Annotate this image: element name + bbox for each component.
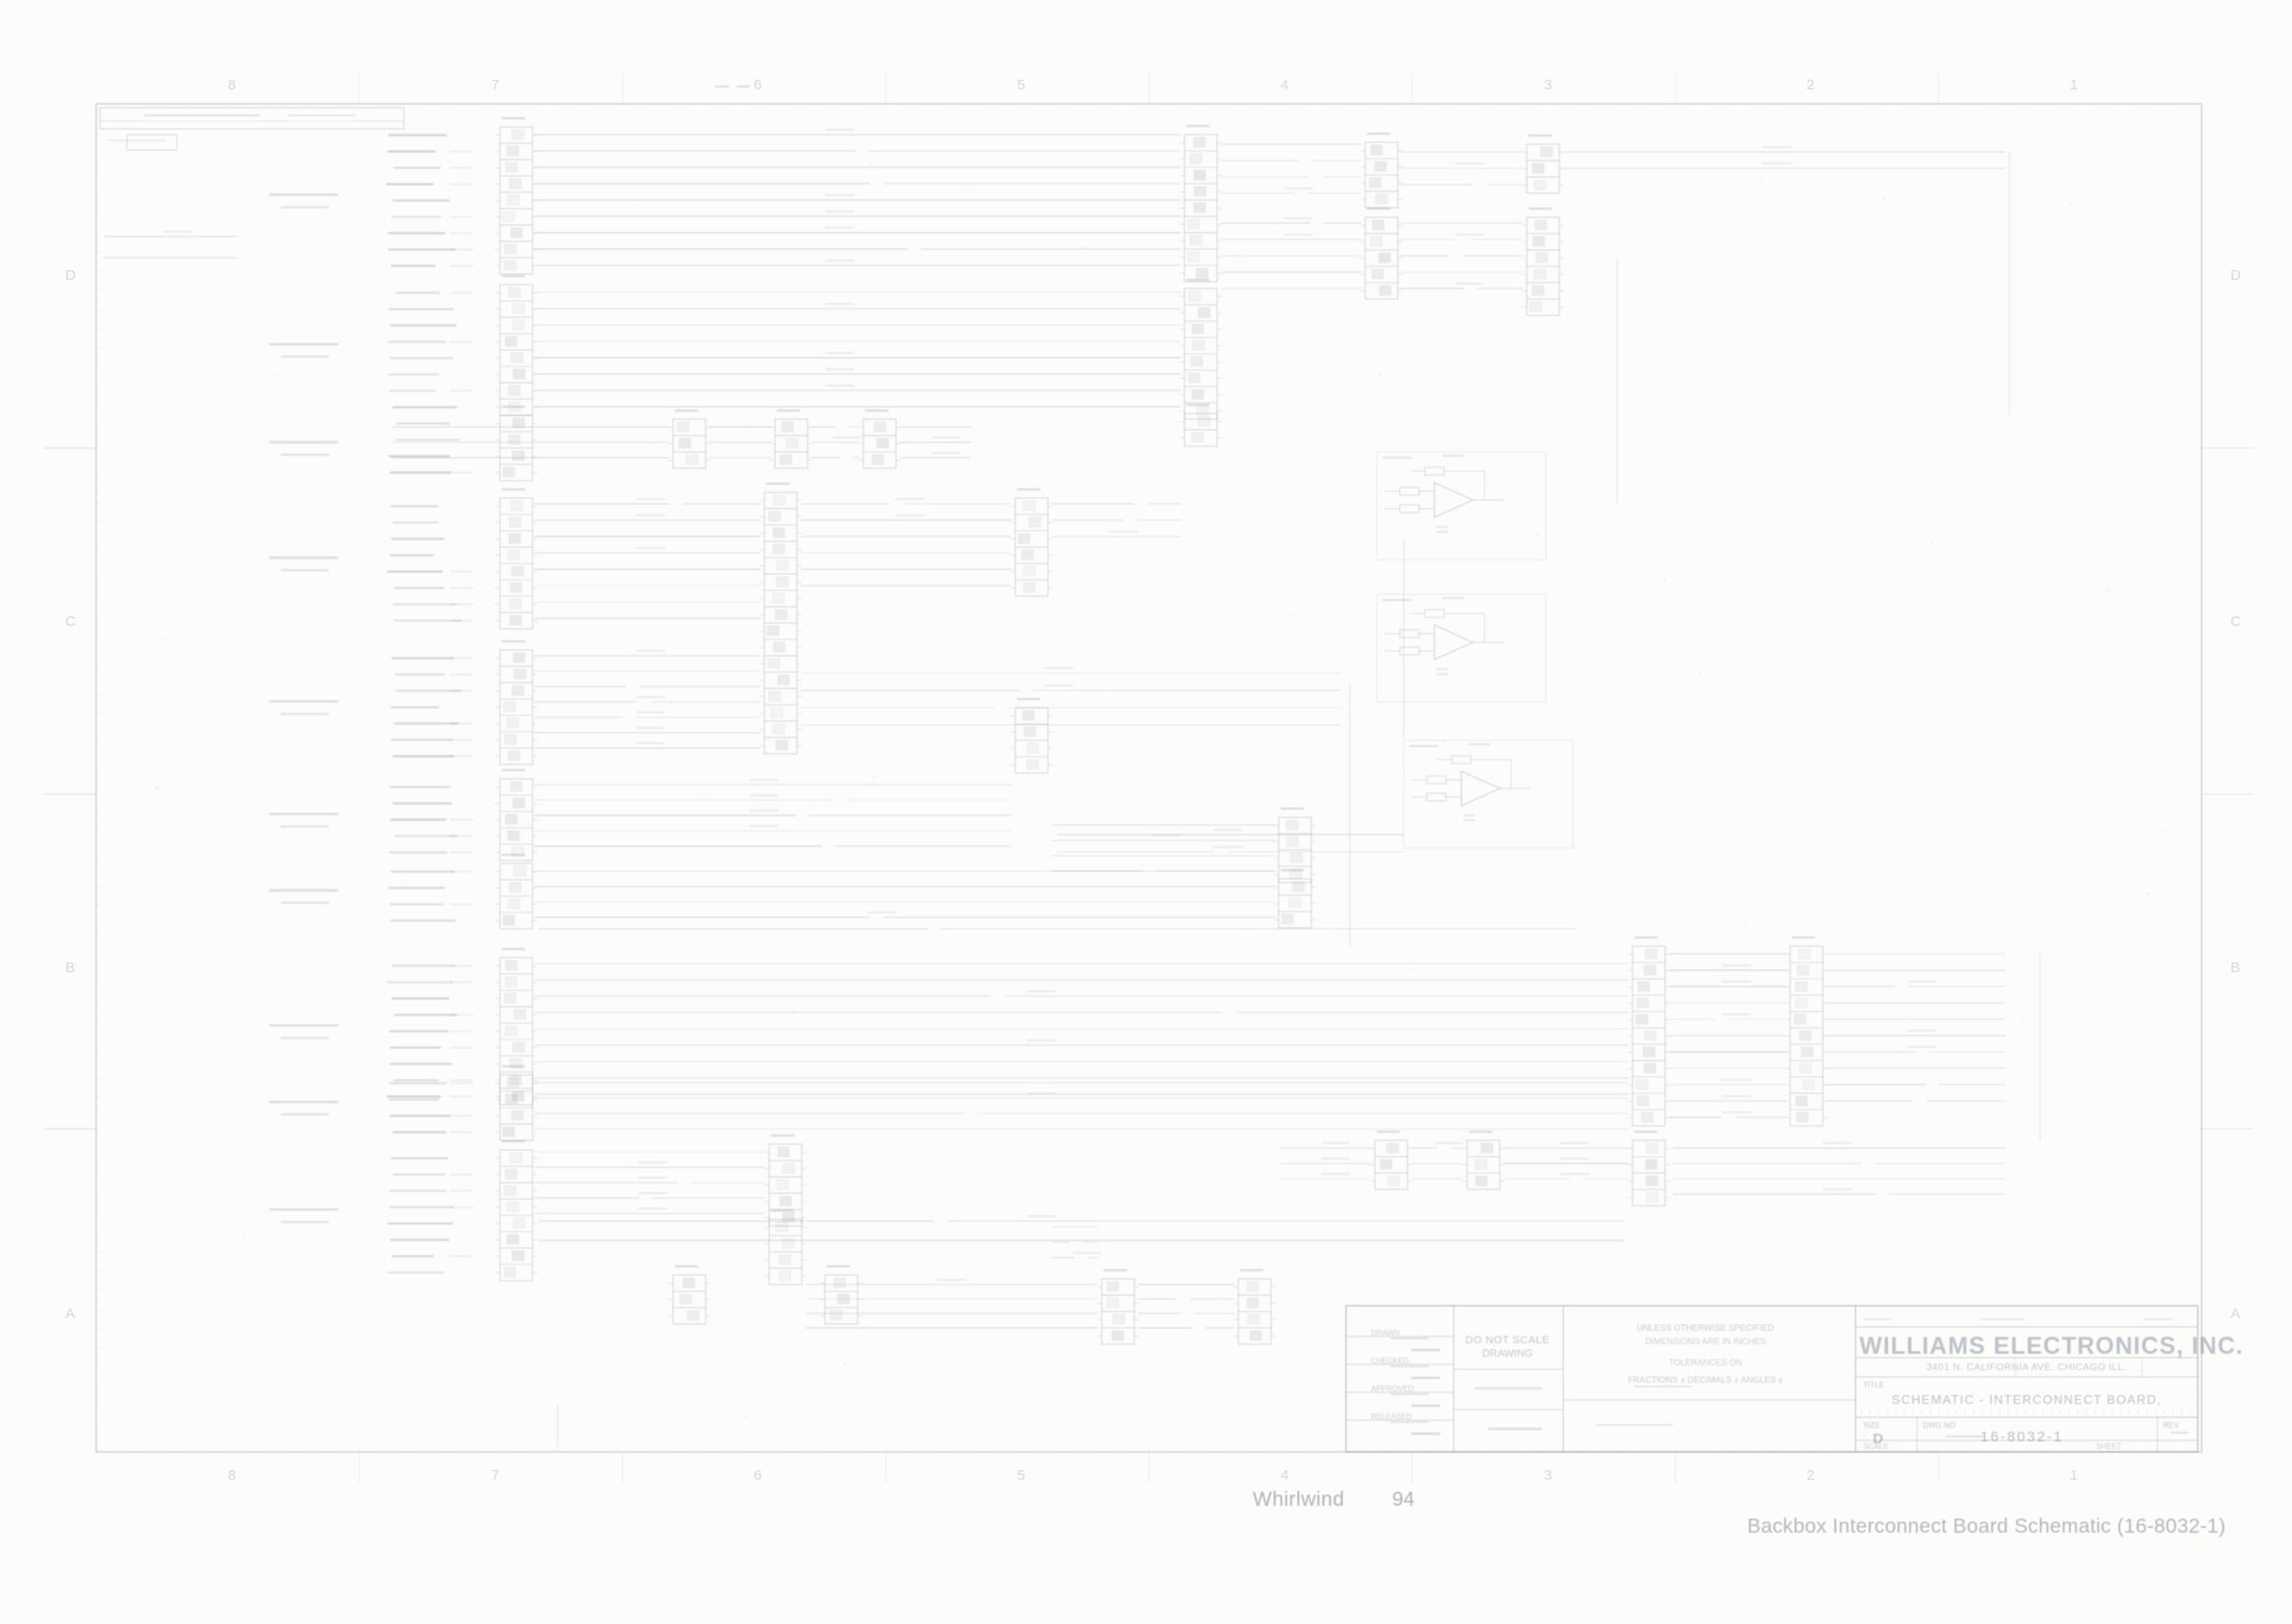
approval-row-approved: APPROVED — [1371, 1385, 1413, 1393]
approval-row-drawn: DRAWN — [1371, 1329, 1400, 1337]
zone-row-left-1: C — [65, 613, 76, 630]
zone-col-bottom-2: 6 — [754, 1467, 761, 1484]
tolerance-line3: TOLERANCES ON — [1563, 1358, 1848, 1367]
zone-col-top-3: 5 — [1017, 77, 1025, 93]
do-not-scale-line2: DRAWING — [1454, 1348, 1561, 1360]
footer-caption: Backbox Interconnect Board Schematic (16… — [1644, 1515, 2226, 1538]
zone-col-bottom-7: 1 — [2070, 1467, 2078, 1484]
company-name: WILLIAMS ELECTRONICS, INC. — [1859, 1333, 2194, 1361]
approval-row-released: RELEASED — [1371, 1412, 1412, 1421]
zone-row-left-2: B — [65, 960, 75, 976]
zone-row-left-0: D — [65, 267, 76, 284]
zone-col-top-2: 6 — [754, 77, 761, 93]
zone-col-bottom-6: 2 — [1806, 1467, 1814, 1484]
zone-col-top-0: 8 — [228, 77, 236, 93]
footer-game-title: Whirlwind — [1253, 1488, 1345, 1512]
zone-col-top-5: 3 — [1544, 77, 1552, 93]
tolerance-line4: FRACTIONS ± DECIMALS ± ANGLES ± — [1563, 1375, 1848, 1385]
company-address: 3401 N. CALIFORNIA AVE. CHICAGO ILL. — [1859, 1362, 2194, 1373]
size-label: SIZE — [1863, 1421, 1881, 1430]
approval-row-checked: CHECKED — [1371, 1357, 1408, 1365]
zone-row-right-0: D — [2230, 267, 2241, 284]
schematic-linework — [0, 0, 2292, 1624]
zone-col-bottom-3: 5 — [1017, 1467, 1025, 1484]
scale-label: SCALE — [1863, 1442, 1888, 1451]
rev-label: REV — [2163, 1421, 2179, 1430]
sheet-label: SHEET — [2096, 1442, 2122, 1451]
drawing-title: SCHEMATIC - INTERCONNECT BOARD, — [1859, 1392, 2194, 1407]
zone-col-top-7: 1 — [2070, 77, 2078, 93]
title-field-label: TITLE — [1863, 1381, 1884, 1389]
tolerance-line2: DIMENSIONS ARE IN INCHES — [1563, 1337, 1848, 1346]
zone-row-right-2: B — [2230, 960, 2240, 976]
zone-col-top-1: 7 — [491, 77, 499, 93]
tolerance-header: UNLESS OTHERWISE SPECIFIED — [1563, 1323, 1848, 1333]
do-not-scale-line1: DO NOT SCALE — [1454, 1335, 1561, 1346]
zone-col-bottom-5: 3 — [1544, 1467, 1552, 1484]
dwg-no-label: DWG NO — [1923, 1421, 1956, 1430]
zone-col-bottom-0: 8 — [228, 1467, 236, 1484]
dwg-no-value: 16-8032-1 — [1981, 1429, 2063, 1445]
footer-page-number: 94 — [1392, 1488, 1414, 1512]
zone-col-top-6: 2 — [1806, 77, 1814, 93]
zone-col-bottom-1: 7 — [491, 1467, 499, 1484]
schematic-sheet: WILLIAMS ELECTRONICS, INC. 3401 N. CALIF… — [0, 0, 2292, 1624]
zone-row-left-3: A — [65, 1306, 75, 1322]
zone-row-right-1: C — [2230, 613, 2241, 630]
zone-row-right-3: A — [2230, 1306, 2240, 1322]
zone-col-top-4: 4 — [1281, 77, 1288, 93]
zone-col-bottom-4: 4 — [1281, 1467, 1288, 1484]
